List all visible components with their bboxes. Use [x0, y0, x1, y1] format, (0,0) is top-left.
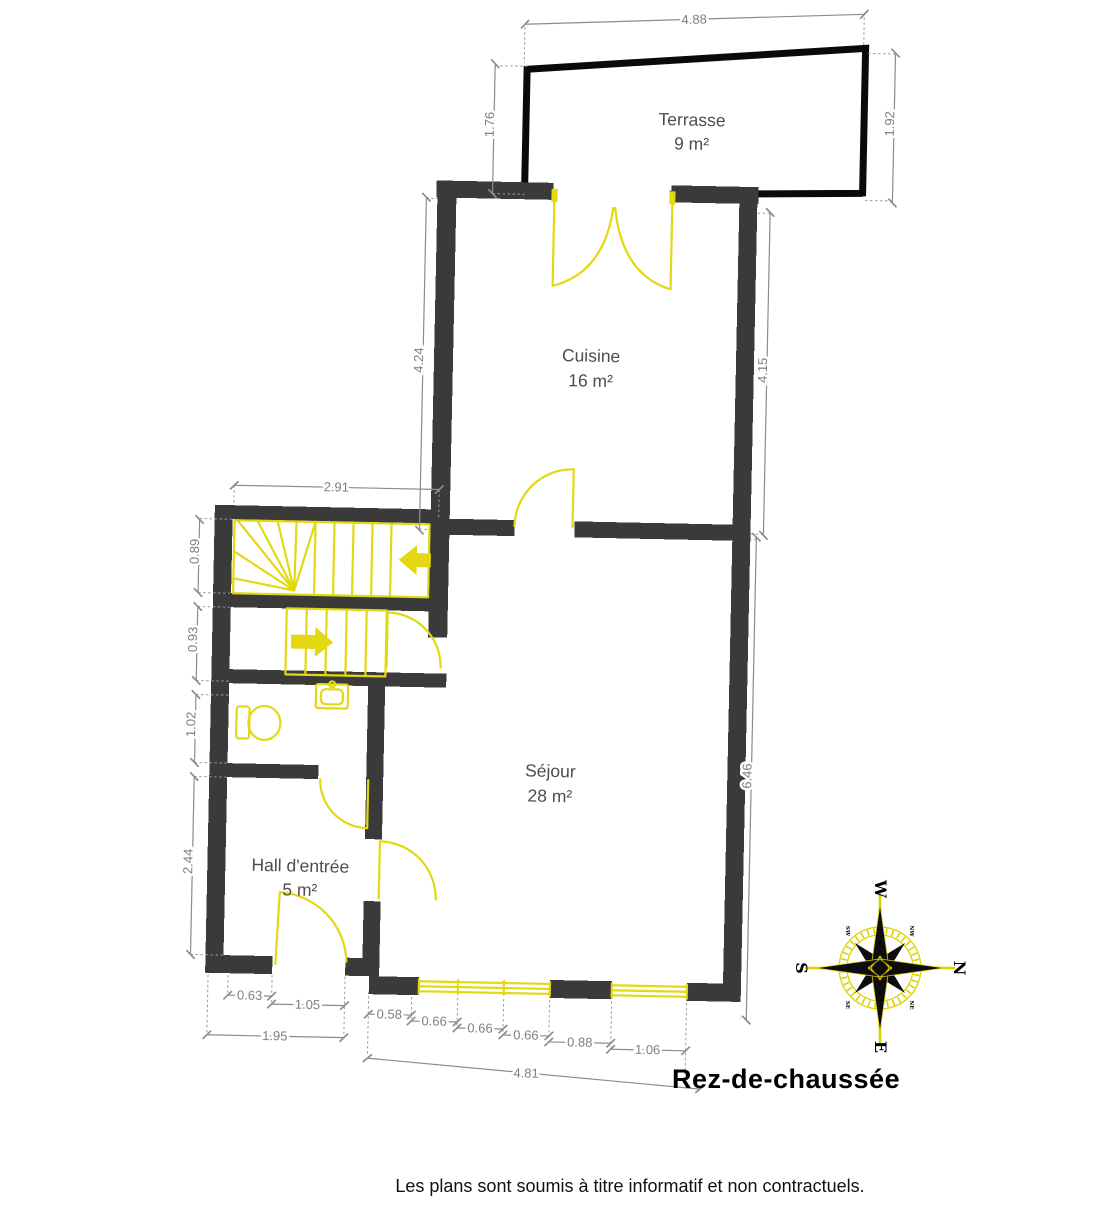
- window-triple: [419, 979, 550, 996]
- dim-label: 0.58: [376, 1006, 402, 1022]
- wall: [449, 519, 514, 536]
- dim-label: 1.95: [262, 1028, 288, 1044]
- dim-label: 4.15: [755, 357, 771, 383]
- room-area-hall: 5 m²: [282, 879, 318, 900]
- wall: [209, 763, 318, 779]
- dim-label: 4.81: [513, 1065, 539, 1081]
- dim-label: 2.44: [180, 849, 196, 875]
- wall: [430, 180, 456, 537]
- wc-door: [319, 779, 368, 828]
- stairs-winder-fan: [233, 520, 315, 591]
- compass-south-label: S: [792, 962, 811, 974]
- wall: [574, 521, 732, 540]
- toilet-icon: [236, 705, 281, 740]
- window-single: [612, 983, 687, 999]
- room-name-terrasse: Terrasse: [658, 109, 726, 130]
- compass-rose-icon: W N E S NW NE SE SW: [790, 878, 970, 1058]
- dim-label: 1.05: [295, 997, 321, 1013]
- dim-label: 4.88: [681, 11, 707, 27]
- stair-arrows: [291, 184, 676, 665]
- dim-label: 0.66: [513, 1027, 539, 1043]
- wall: [428, 537, 449, 637]
- dim-label: 0.66: [467, 1020, 493, 1036]
- room-area-sejour: 28 m²: [527, 785, 572, 806]
- room-labels: Terrasse 9 m² Cuisine 16 m² Séjour 28 m²…: [251, 101, 726, 908]
- hall-sejour-door: [379, 841, 437, 899]
- disclaimer-text: Les plans sont soumis à titre informatif…: [340, 1176, 920, 1197]
- compass-east-label: E: [871, 1041, 890, 1053]
- compass-ne-label: NE: [908, 1000, 914, 1009]
- dim-label: 0.88: [567, 1034, 593, 1050]
- wall: [550, 980, 612, 999]
- compass-sw-label: SW: [844, 926, 850, 937]
- door-jamb: [669, 191, 675, 204]
- room-name-cuisine: Cuisine: [562, 345, 621, 366]
- floor-plan: 4.88 1.76 1.92 4.24 4.15 2.91 0.89 0.93 …: [0, 0, 1113, 1200]
- dim-label: 2.91: [324, 479, 350, 495]
- wall: [687, 983, 741, 1002]
- wall: [345, 958, 369, 976]
- room-name-sejour: Séjour: [525, 760, 576, 781]
- wall: [723, 200, 758, 1002]
- dim-label: 6.46: [739, 763, 755, 789]
- room-area-cuisine: 16 m²: [568, 370, 613, 391]
- dim-label: 1.02: [183, 712, 199, 738]
- wall: [205, 955, 272, 974]
- compass-west-label: W: [871, 879, 890, 899]
- dim-label: 1.92: [882, 111, 898, 137]
- terrace-door-left: [553, 200, 614, 287]
- compass-nw-label: NW: [908, 925, 914, 937]
- compass-north-label: N: [950, 961, 969, 976]
- compass-se-label: SE: [844, 1001, 850, 1009]
- dim-label: 0.66: [421, 1013, 447, 1029]
- dim-label: 1.06: [635, 1042, 661, 1058]
- cuisine-door: [515, 468, 574, 527]
- dim-label: 0.89: [187, 539, 203, 565]
- dim-label: 0.93: [185, 627, 201, 653]
- room-name-hall: Hall d'entrée: [251, 855, 349, 877]
- stairs-upper-treads: [314, 522, 392, 597]
- entrance-door: [275, 892, 347, 965]
- wall: [205, 505, 233, 973]
- room-area-terrasse: 9 m²: [674, 133, 710, 154]
- terrace-door-right: [614, 201, 673, 289]
- dim-label: 0.63: [237, 987, 263, 1003]
- door-jamb: [551, 189, 557, 202]
- sink-icon: [316, 681, 349, 709]
- arrow-left-icon: [398, 545, 431, 576]
- wall: [369, 976, 419, 995]
- dim-label: 4.24: [411, 347, 427, 373]
- dim-label: 1.76: [482, 112, 498, 138]
- floor-title: Rez-de-chaussée: [672, 1064, 900, 1095]
